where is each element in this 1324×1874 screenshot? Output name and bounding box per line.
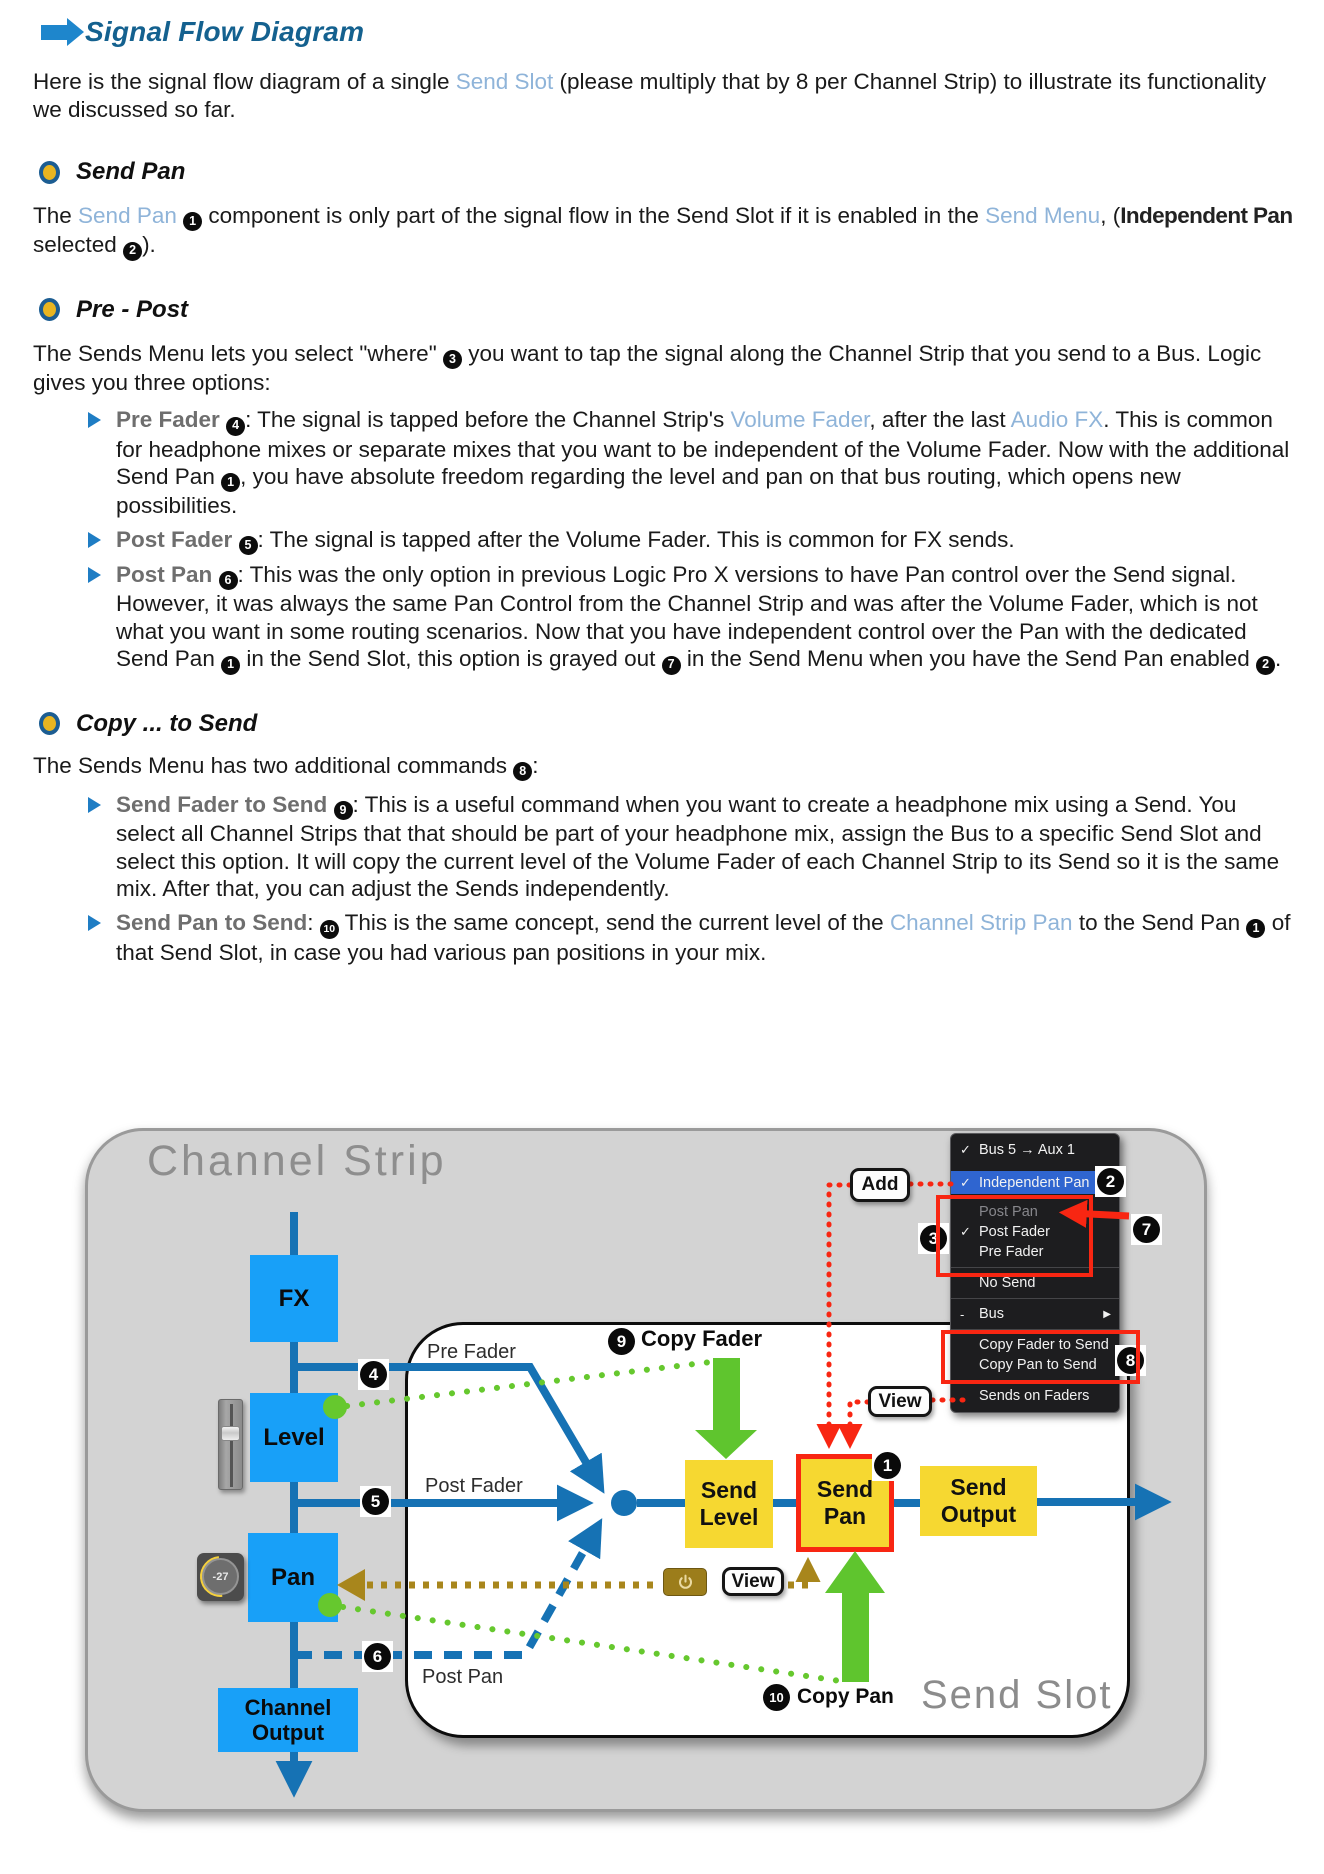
copy-send-paragraph: The Sends Menu has two additional comman… [33, 752, 1295, 781]
view-button-sends-on-faders[interactable]: View [868, 1386, 932, 1417]
pre-post-paragraph: The Sends Menu lets you select "where" 3… [33, 340, 1295, 397]
diagram-badge-4: 4 [358, 1359, 389, 1390]
bullet-lead: Pre Fader [116, 407, 226, 432]
section-header-send-pan: Send Pan [39, 158, 1291, 186]
text: in the Send Slot, this option is grayed … [240, 646, 662, 671]
link-volume-fader: Volume Fader [731, 407, 870, 432]
copy-send-bullets: Send Fader to Send 9: This is a useful c… [33, 791, 1291, 967]
diagram-badge-7: 7 [1131, 1214, 1162, 1245]
bullet-post-fader: Post Fader 5: The signal is tapped after… [88, 526, 1298, 555]
bullet-lead: Post Pan [116, 562, 219, 587]
power-toggle-button[interactable] [663, 1568, 707, 1596]
bullet-arrow-icon [88, 412, 101, 428]
document-page: Signal Flow Diagram Here is the signal f… [0, 0, 1324, 972]
link-send-menu: Send Menu [985, 203, 1100, 228]
bullet-send-fader-to-send: Send Fader to Send 9: This is a useful c… [88, 791, 1298, 903]
text: : The signal is tapped after the Volume … [258, 527, 1015, 552]
bullet-lead: Post Fader [116, 527, 239, 552]
link-send-slot: Send Slot [456, 69, 554, 94]
text: , after the last [869, 407, 1010, 432]
section-bullet-icon [39, 298, 60, 321]
section-title: Copy ... to Send [76, 710, 257, 738]
section-header-pre-post: Pre - Post [39, 296, 1291, 324]
independent-pan-term: Independent Pan [1120, 203, 1292, 228]
section-title: Send Pan [76, 158, 185, 186]
badge-1: 1 [221, 473, 240, 492]
menu-copy-commands-highlight [941, 1330, 1140, 1384]
text: , you have absolute freedom regarding th… [116, 464, 1181, 518]
bullet-lead: Send Pan to Send [116, 910, 307, 935]
view-to-send-pan-dotted [850, 1402, 868, 1439]
heading-arrow-icon [41, 25, 67, 40]
text: to the Send Pan [1073, 910, 1247, 935]
bullet-send-pan-to-send: Send Pan to Send: 10 This is the same co… [88, 909, 1298, 967]
badge-4: 4 [226, 417, 245, 436]
link-channel-strip-pan: Channel Strip Pan [890, 910, 1073, 935]
gold-dotted-line-to-send-pan [788, 1567, 808, 1585]
section-bullet-icon [39, 161, 60, 184]
text: in the Send Menu when you have the Send … [681, 646, 1256, 671]
text: , ( [1100, 203, 1120, 228]
copy-pan-green-arrow [825, 1551, 885, 1682]
section-title: Pre - Post [76, 296, 188, 324]
badge-9: 9 [334, 801, 353, 820]
badge-6: 6 [219, 571, 238, 590]
add-to-send-pan-dotted [829, 1185, 850, 1439]
copy-fader-dotted-line [347, 1362, 711, 1406]
send-pan-paragraph: The Send Pan 1 component is only part of… [33, 202, 1295, 261]
badge-1: 1 [221, 656, 240, 675]
text: This is the same concept, send the curre… [339, 910, 890, 935]
bullet-arrow-icon [88, 567, 101, 583]
menu-pre-post-group-highlight [936, 1195, 1093, 1277]
text: ). [142, 232, 156, 257]
page-title-row: Signal Flow Diagram [41, 16, 1291, 48]
intro-text: Here is the signal flow diagram of a sin… [33, 69, 456, 94]
view-button-send-pan[interactable]: View [722, 1567, 784, 1596]
section-bullet-icon [39, 712, 60, 735]
text: : [307, 910, 320, 935]
pre-fader-green-dot [323, 1395, 347, 1419]
page-title: Signal Flow Diagram [85, 16, 364, 48]
section-header-copy-to-send: Copy ... to Send [39, 710, 1291, 738]
badge-5: 5 [239, 536, 258, 555]
text: The [33, 203, 78, 228]
text: The Sends Menu lets you select "where" [33, 341, 443, 366]
bullet-pre-fader: Pre Fader 4: The signal is tapped before… [88, 406, 1298, 520]
text: . [1275, 646, 1281, 671]
diagram-badge-2: 2 [1095, 1166, 1126, 1197]
intro-paragraph: Here is the signal flow diagram of a sin… [33, 68, 1295, 123]
copy-fader-green-arrow [695, 1358, 757, 1459]
add-button[interactable]: Add [850, 1168, 910, 1202]
post-pan-green-dot [318, 1593, 342, 1617]
diagram-badge-1: 1 [872, 1450, 903, 1481]
badge-2: 2 [1256, 656, 1275, 675]
diagram-badge-9: 9 [606, 1326, 637, 1357]
text: component is only part of the signal flo… [202, 203, 985, 228]
bullet-lead: Send Fader to Send [116, 792, 334, 817]
badge-7: 7 [662, 656, 681, 675]
bullet-post-pan: Post Pan 6: This was the only option in … [88, 561, 1298, 675]
bullet-arrow-icon [88, 532, 101, 548]
text: : [532, 753, 538, 778]
badge-1: 1 [1246, 919, 1265, 938]
power-icon [677, 1574, 694, 1591]
bullet-arrow-icon [88, 797, 101, 813]
gold-arrowhead-into-pan [337, 1569, 365, 1601]
diagram-badge-10: 10 [761, 1682, 792, 1713]
signal-flow-diagram: Channel Strip Send Slot FX Level Pan Cha… [85, 1115, 1207, 1815]
pre-post-bullets: Pre Fader 4: The signal is tapped before… [33, 406, 1291, 674]
link-audio-fx: Audio FX [1011, 407, 1104, 432]
badge-1: 1 [183, 212, 202, 231]
badge-10: 10 [320, 920, 339, 939]
badge-2: 2 [123, 242, 142, 261]
badge-3: 3 [443, 350, 462, 369]
link-send-pan: Send Pan [78, 203, 177, 228]
text: selected [33, 232, 123, 257]
text: : The signal is tapped before the Channe… [245, 407, 730, 432]
diagram-badge-5: 5 [360, 1486, 391, 1517]
copy-pan-dotted-line [343, 1607, 840, 1681]
badge-8: 8 [513, 762, 532, 781]
diagram-badge-6: 6 [362, 1641, 393, 1672]
bullet-arrow-icon [88, 915, 101, 931]
text: The Sends Menu has two additional comman… [33, 753, 513, 778]
